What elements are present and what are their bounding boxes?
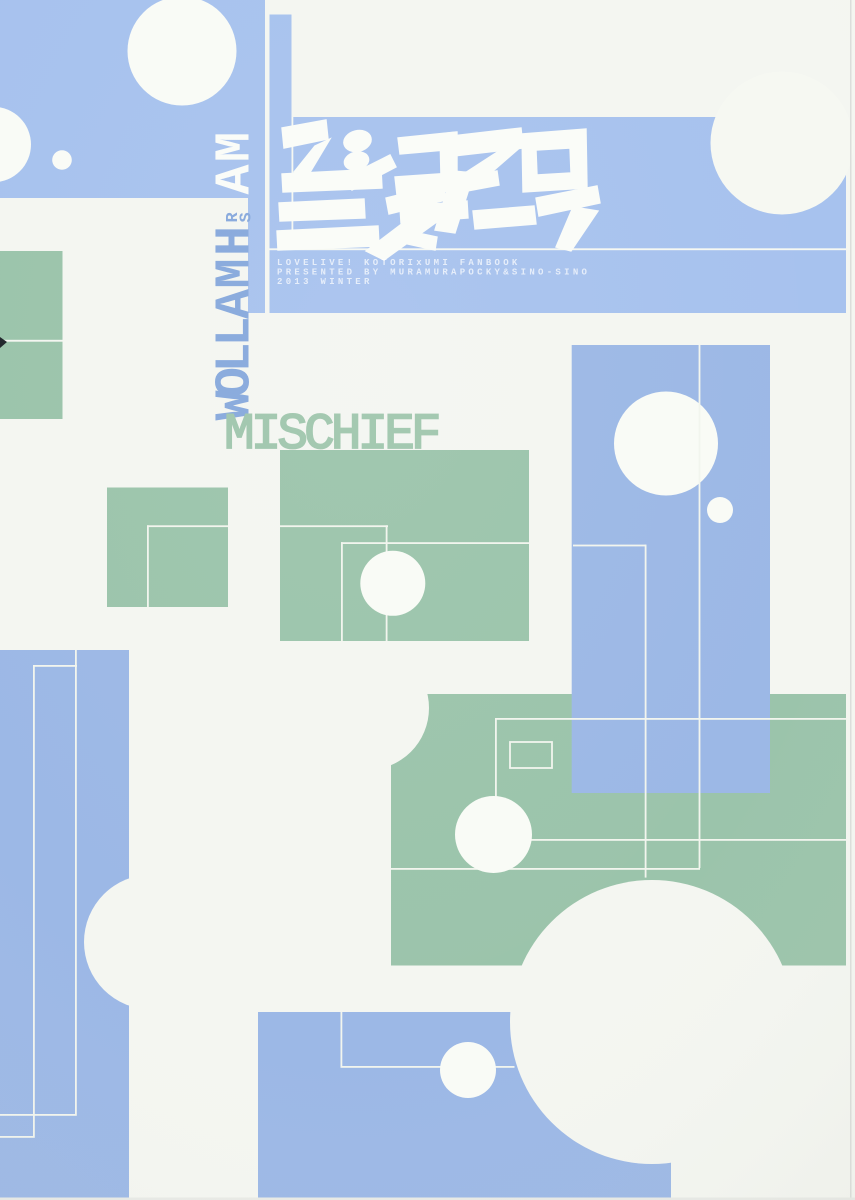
svg-text:MISCHIEF: MISCHIEF — [224, 407, 439, 464]
svg-text:LOVELIVE! KOTORIxUMI FANBOOK: LOVELIVE! KOTORIxUMI FANBOOK — [277, 258, 521, 268]
svg-text:PRESENTED BY MURAMURAPOCKY&SIN: PRESENTED BY MURAMURAPOCKY&SINO-SINO — [277, 268, 590, 278]
svg-text:2013 WINTER: 2013 WINTER — [277, 277, 373, 287]
